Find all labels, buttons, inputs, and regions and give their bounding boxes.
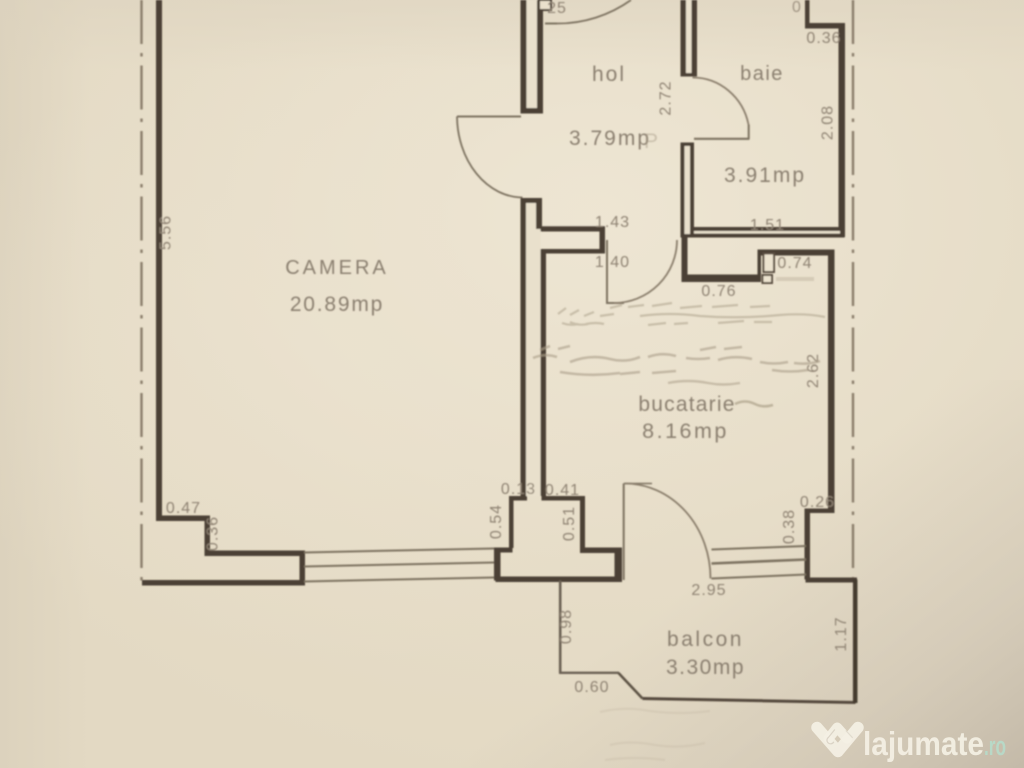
svg-text:0.41: 0.41 <box>545 482 580 499</box>
svg-text:0.38: 0.38 <box>781 509 798 544</box>
svg-text:0.36: 0.36 <box>806 30 841 47</box>
svg-text:balcon: balcon <box>667 628 744 651</box>
svg-text:8.16mp: 8.16mp <box>642 419 729 443</box>
svg-text:P: P <box>644 130 658 153</box>
svg-text:0.54: 0.54 <box>488 504 505 539</box>
svg-text:0.98: 0.98 <box>558 609 575 644</box>
svg-text:25: 25 <box>547 0 567 17</box>
svg-text:0.26: 0.26 <box>800 494 835 511</box>
svg-text:2.08: 2.08 <box>820 105 837 140</box>
svg-text:CAMERA: CAMERA <box>285 257 389 279</box>
svg-text:2.72: 2.72 <box>658 80 675 115</box>
svg-text:3.30mp: 3.30mp <box>666 656 745 679</box>
svg-text:.ro: .ro <box>984 731 1006 761</box>
svg-text:1.17: 1.17 <box>833 616 850 651</box>
svg-text:5.56: 5.56 <box>158 215 175 250</box>
svg-text:0.47: 0.47 <box>166 500 201 517</box>
svg-text:20.89mp: 20.89mp <box>290 293 384 316</box>
svg-text:hol: hol <box>592 63 626 86</box>
svg-text:0: 0 <box>792 0 802 16</box>
svg-text:0.76: 0.76 <box>701 283 736 300</box>
svg-text:3.79mp: 3.79mp <box>569 127 651 150</box>
svg-text:0.74: 0.74 <box>777 255 812 272</box>
svg-text:0.36: 0.36 <box>205 516 222 551</box>
svg-text:1.43: 1.43 <box>595 214 630 231</box>
svg-text:baie: baie <box>740 63 784 85</box>
svg-text:0.51: 0.51 <box>561 506 578 541</box>
svg-text:0.60: 0.60 <box>574 679 609 696</box>
svg-text:0.13: 0.13 <box>501 481 536 498</box>
svg-text:bucatarie: bucatarie <box>638 393 735 416</box>
svg-text:1.51: 1.51 <box>750 217 785 234</box>
svg-text:2.95: 2.95 <box>691 582 726 599</box>
svg-text:3.91mp: 3.91mp <box>724 164 806 187</box>
svg-text:1.40: 1.40 <box>595 254 630 271</box>
svg-text:lajumate: lajumate <box>863 725 984 762</box>
